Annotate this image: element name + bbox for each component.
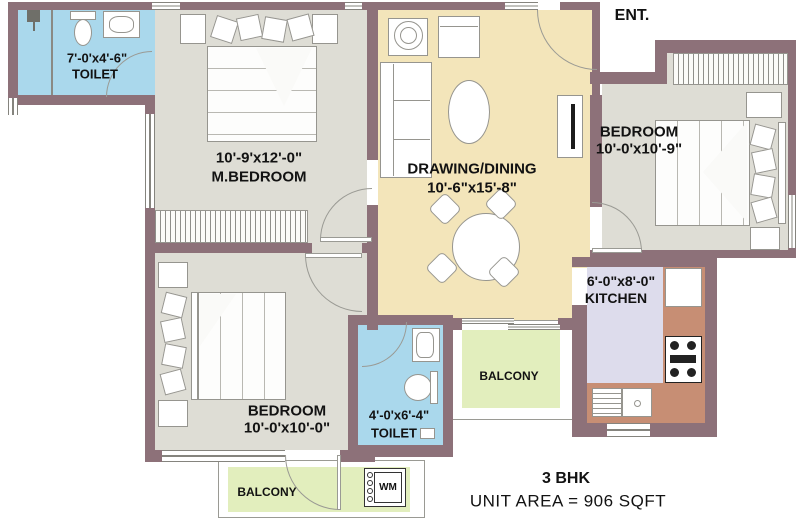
toilet-top-dims: 7'-0'x4'-6" (67, 52, 127, 65)
sink-drainboard (592, 388, 622, 417)
hob-burner (687, 341, 696, 350)
wall (145, 243, 312, 253)
wall (443, 318, 462, 330)
mbed-pillow (236, 14, 263, 41)
rug-oval (448, 80, 490, 144)
washbasin-inner-2 (416, 332, 434, 358)
wall (362, 2, 505, 10)
balcony-mid-label: BALCONY (479, 370, 538, 382)
armchair-icon (438, 16, 480, 58)
drawing-dining-dims: 10'-6"x15'-8" (427, 181, 517, 196)
bedroom-bottom-dims: 10'-0'x10'-0" (244, 421, 330, 436)
rbed-pillow (750, 173, 775, 198)
sofa-cushion-line (394, 139, 430, 140)
sliding-door (508, 324, 560, 330)
rbed-blanket-fold (703, 122, 747, 222)
unit-area-label: UNIT AREA = 906 SQFT (470, 493, 666, 510)
toilet-top-label: TOILET (72, 68, 118, 81)
window (505, 2, 538, 10)
wall (572, 423, 607, 437)
master-bedroom-dims: 10'-9'x12'-0" (216, 151, 302, 166)
bedroom-right-label: BEDROOM (600, 125, 678, 140)
wall (180, 2, 345, 10)
window (607, 423, 650, 437)
wall (443, 315, 453, 455)
wall (650, 423, 717, 437)
bbed-nightstand-top (158, 262, 188, 288)
wm-dial (367, 488, 373, 494)
wall (145, 98, 155, 114)
door-leaf-bedroom-right (592, 248, 642, 253)
wm-dial (367, 480, 373, 486)
mbed-nightstand-right (312, 14, 338, 44)
sofa-back-line (393, 64, 394, 176)
rbed-nightstand-top (746, 92, 782, 118)
wall (788, 40, 796, 195)
door-leaf-balcony-bottom (337, 455, 341, 510)
wall (655, 40, 796, 53)
hob-burner (670, 368, 679, 377)
window (8, 98, 18, 115)
wall (367, 10, 378, 160)
hob-burner (687, 368, 696, 377)
drawing-dining-label: DRAWING/DINING (407, 162, 536, 177)
wc-tank-2 (430, 371, 438, 404)
kitchen-dims: 6'-0"x8'-0" (587, 274, 655, 288)
wall (8, 2, 18, 98)
window (345, 2, 362, 10)
tv-icon (571, 104, 575, 149)
door-leaf-master-bedroom (320, 237, 372, 242)
kitchen-label: KITCHEN (585, 291, 647, 305)
sliding-door (462, 318, 514, 324)
wm-dial (367, 472, 373, 478)
window (162, 450, 285, 462)
mbed-nightstand-left (180, 14, 206, 44)
rbed-headboard (778, 122, 786, 224)
master-bedroom-label: M.BEDROOM (212, 170, 307, 185)
floor-plan: 7'-0'x4'-6" TOILET 10'-9'x12'-0" M.BEDRO… (0, 0, 800, 527)
rbed-wardrobe (673, 53, 788, 85)
washbasin-inner (109, 16, 134, 33)
bbed-headboard (191, 292, 198, 400)
wall (572, 305, 587, 437)
shower-icon (27, 9, 40, 22)
hob-grill (670, 355, 696, 363)
bbed-nightstand-bottom (158, 400, 188, 427)
door-leaf-bedroom-bottom (305, 253, 362, 258)
window (788, 195, 796, 248)
paper-holder-icon (420, 428, 435, 439)
mbed-wardrobe (150, 210, 308, 243)
bbed-pillow (160, 317, 186, 343)
washing-machine-label: WM (379, 483, 397, 493)
mbed-pillow (261, 16, 288, 43)
wall (145, 450, 162, 462)
wall (348, 325, 358, 445)
toilet-top-shower-divider (51, 8, 53, 95)
wall (8, 2, 152, 10)
bedroom-bottom-label: BEDROOM (248, 404, 326, 419)
window (152, 2, 180, 10)
rbed-nightstand-bottom (750, 227, 780, 250)
balcony-bottom-label: BALCONY (237, 486, 296, 498)
toilet-bottom-label: TOILET (371, 427, 417, 440)
side-table-circle-inner (400, 27, 417, 44)
unit-type-label: 3 BHK (542, 471, 590, 487)
window (145, 114, 155, 208)
bbed-pillow (161, 343, 187, 369)
tv-unit (557, 95, 583, 158)
hob-burner (670, 341, 679, 350)
rbed-pillow (751, 148, 777, 174)
toilet-bottom-dims: 4'-0'x6'-4" (369, 409, 429, 422)
wall (348, 445, 453, 457)
wall (705, 257, 717, 437)
sink-drain (634, 400, 641, 407)
wc-bowl-icon (74, 19, 92, 46)
wall (572, 257, 717, 267)
shower-hose (33, 22, 35, 31)
bedroom-right-dims: 10'-0'x10'-9" (596, 142, 682, 157)
mbed-blanket-fold (256, 48, 312, 106)
wm-dial (367, 496, 373, 502)
armchair-back-line (440, 26, 478, 27)
sofa-cushion-line (394, 100, 430, 101)
entrance-label: ENT. (615, 8, 650, 24)
bbed-blanket-fold (200, 294, 236, 346)
refrigerator-icon (665, 268, 702, 307)
wc-bowl-icon-2 (404, 374, 432, 401)
